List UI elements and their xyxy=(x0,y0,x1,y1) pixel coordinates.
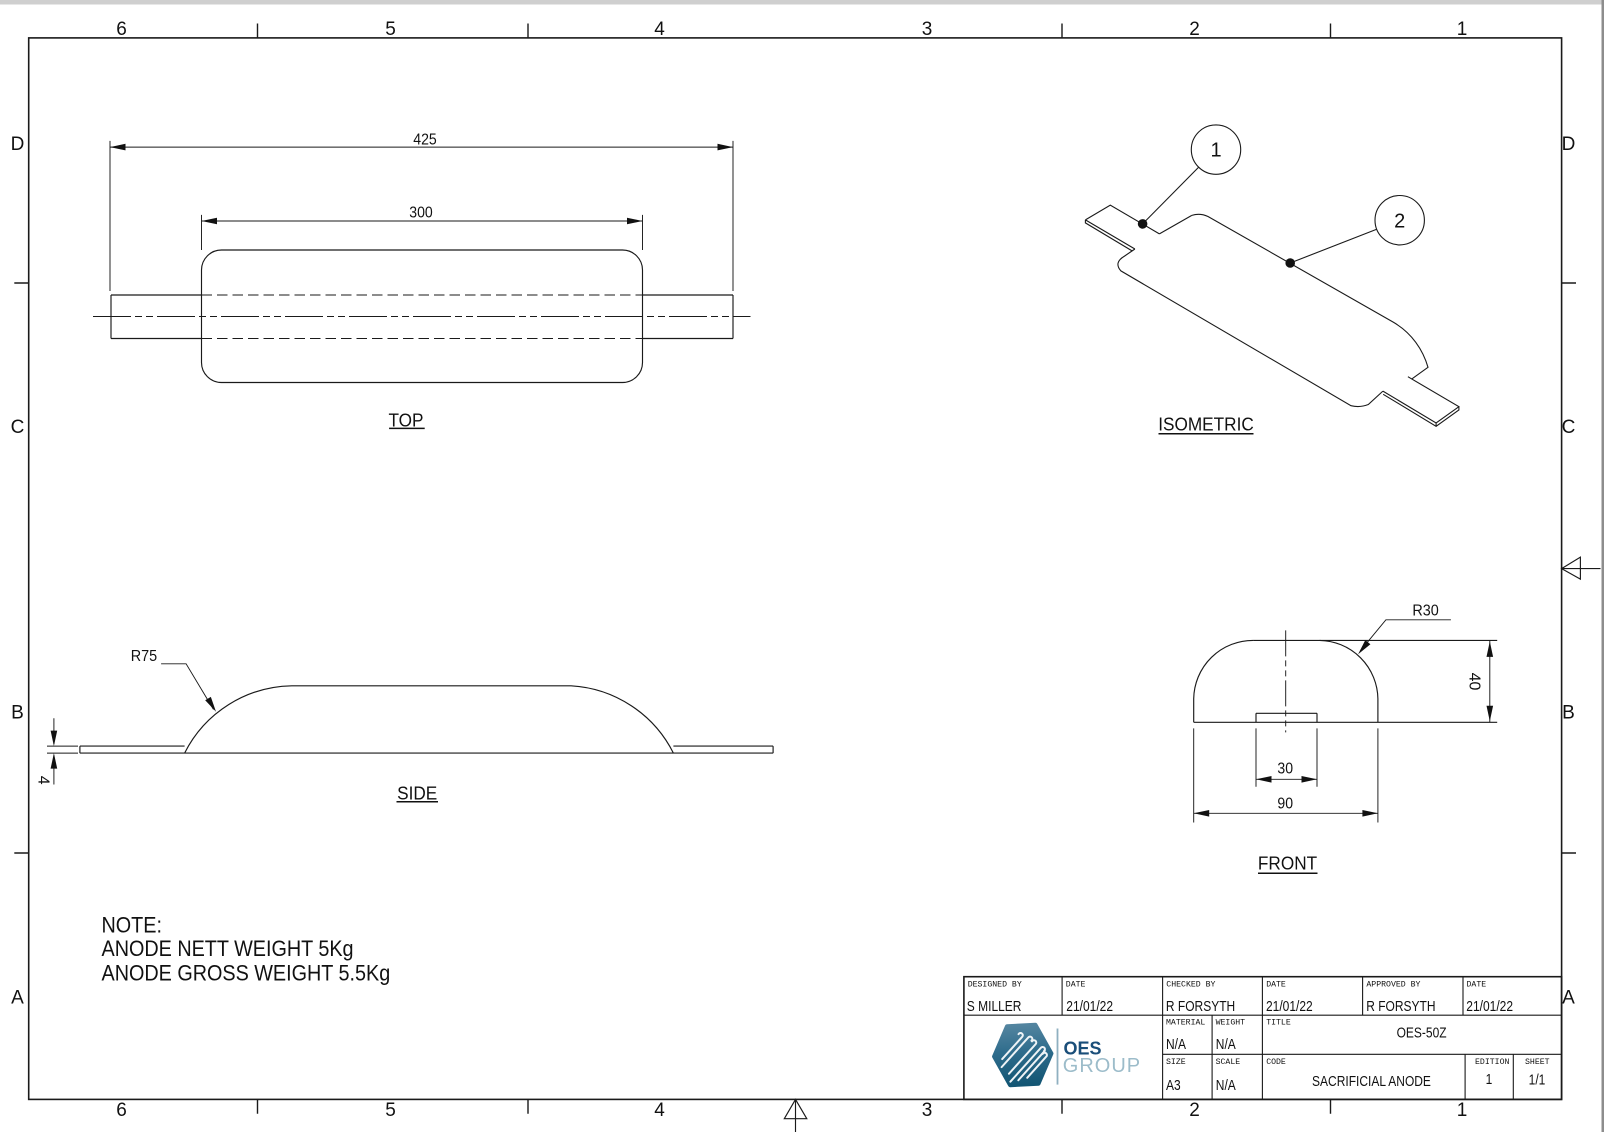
svg-text:DESIGNED BY: DESIGNED BY xyxy=(968,981,1022,990)
svg-text:CODE: CODE xyxy=(1266,1058,1286,1067)
svg-text:5: 5 xyxy=(385,1100,396,1121)
svg-text:D: D xyxy=(1562,134,1576,155)
svg-text:3: 3 xyxy=(922,19,933,40)
svg-text:2: 2 xyxy=(1189,19,1200,40)
svg-text:DATE: DATE xyxy=(1467,981,1487,990)
svg-text:A: A xyxy=(1562,988,1575,1009)
svg-text:B: B xyxy=(11,703,24,724)
svg-text:300: 300 xyxy=(409,204,432,222)
svg-text:B: B xyxy=(1562,703,1575,724)
svg-text:OES-50Z: OES-50Z xyxy=(1397,1024,1447,1041)
svg-text:1: 1 xyxy=(1210,140,1221,162)
svg-text:A: A xyxy=(11,988,24,1009)
svg-text:5: 5 xyxy=(385,19,396,40)
svg-text:4: 4 xyxy=(35,776,52,785)
svg-text:N/A: N/A xyxy=(1166,1036,1187,1053)
svg-text:40: 40 xyxy=(1465,673,1482,691)
svg-text:FRONT: FRONT xyxy=(1258,853,1317,874)
svg-text:425: 425 xyxy=(413,131,436,149)
svg-text:CHECKED BY: CHECKED BY xyxy=(1166,981,1215,990)
svg-text:DATE: DATE xyxy=(1066,981,1086,990)
svg-text:ANODE NETT WEIGHT 5Kg: ANODE NETT WEIGHT 5Kg xyxy=(102,937,354,961)
svg-text:3: 3 xyxy=(922,1100,933,1121)
svg-text:21/01/22: 21/01/22 xyxy=(1066,998,1113,1015)
svg-text:30: 30 xyxy=(1277,760,1293,778)
svg-text:4: 4 xyxy=(654,1100,665,1121)
svg-text:21/01/22: 21/01/22 xyxy=(1466,998,1513,1015)
svg-text:TITLE: TITLE xyxy=(1266,1019,1291,1028)
svg-text:1/1: 1/1 xyxy=(1529,1071,1546,1088)
svg-text:SIZE: SIZE xyxy=(1166,1058,1186,1067)
svg-text:N/A: N/A xyxy=(1216,1077,1237,1094)
svg-text:1: 1 xyxy=(1486,1071,1493,1088)
svg-text:DATE: DATE xyxy=(1266,981,1286,990)
svg-text:C: C xyxy=(11,417,25,438)
svg-text:N/A: N/A xyxy=(1216,1036,1237,1053)
svg-text:D: D xyxy=(11,134,25,155)
svg-text:ISOMETRIC: ISOMETRIC xyxy=(1158,414,1254,435)
svg-text:1: 1 xyxy=(1457,1100,1468,1121)
svg-text:21/01/22: 21/01/22 xyxy=(1266,998,1313,1015)
svg-text:2: 2 xyxy=(1394,210,1405,232)
svg-text:NOTE:: NOTE: xyxy=(102,913,162,937)
svg-text:S MILLER: S MILLER xyxy=(967,998,1022,1015)
svg-text:ANODE GROSS WEIGHT 5.5Kg: ANODE GROSS WEIGHT 5.5Kg xyxy=(102,961,391,985)
svg-text:APPROVED BY: APPROVED BY xyxy=(1366,981,1420,990)
svg-text:SHEET: SHEET xyxy=(1525,1058,1550,1067)
svg-text:MATERIAL: MATERIAL xyxy=(1166,1019,1205,1028)
svg-text:EDITION: EDITION xyxy=(1475,1058,1509,1067)
svg-text:R FORSYTH: R FORSYTH xyxy=(1166,998,1235,1015)
svg-text:2: 2 xyxy=(1189,1100,1200,1121)
svg-text:R75: R75 xyxy=(131,647,157,665)
svg-text:WEIGHT: WEIGHT xyxy=(1216,1019,1246,1028)
svg-text:SIDE: SIDE xyxy=(397,783,437,804)
svg-text:C: C xyxy=(1562,417,1576,438)
svg-text:4: 4 xyxy=(654,19,665,40)
svg-text:A3: A3 xyxy=(1166,1077,1181,1094)
svg-text:SACRIFICIAL ANODE: SACRIFICIAL ANODE xyxy=(1312,1073,1431,1090)
svg-text:R FORSYTH: R FORSYTH xyxy=(1366,998,1435,1015)
svg-text:6: 6 xyxy=(116,19,127,40)
svg-text:TOP: TOP xyxy=(388,410,423,431)
svg-text:GROUP: GROUP xyxy=(1063,1055,1141,1077)
svg-text:1: 1 xyxy=(1457,19,1468,40)
svg-text:90: 90 xyxy=(1277,795,1293,813)
svg-text:6: 6 xyxy=(116,1100,127,1121)
svg-text:R30: R30 xyxy=(1412,602,1438,620)
svg-text:SCALE: SCALE xyxy=(1216,1058,1241,1067)
